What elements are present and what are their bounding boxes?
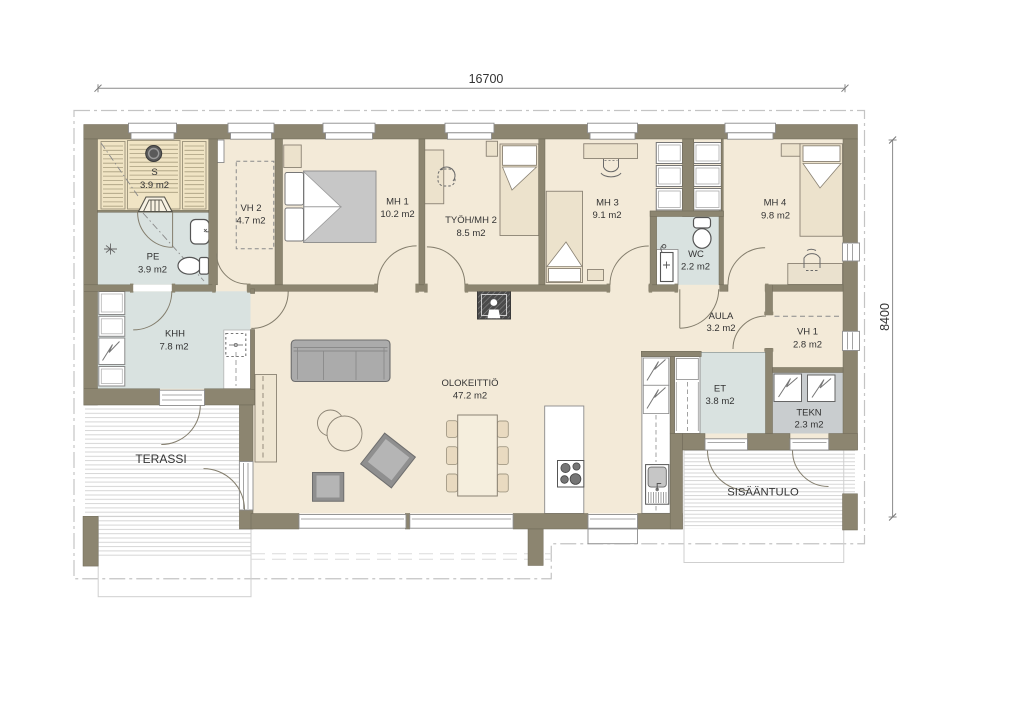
svg-text:PE: PE	[147, 252, 160, 263]
svg-text:TERASSI: TERASSI	[135, 452, 186, 466]
svg-text:10.2 m2: 10.2 m2	[380, 209, 414, 220]
svg-text:MH 1: MH 1	[386, 197, 409, 208]
svg-text:8.5 m2: 8.5 m2	[456, 228, 485, 239]
svg-text:2.3 m2: 2.3 m2	[794, 420, 823, 431]
svg-text:SISÄÄNTULO: SISÄÄNTULO	[727, 487, 799, 499]
svg-text:3.2 m2: 3.2 m2	[706, 323, 735, 334]
svg-text:47.2 m2: 47.2 m2	[453, 391, 487, 402]
svg-text:VH 2: VH 2	[240, 203, 261, 214]
svg-text:VH 1: VH 1	[797, 327, 818, 338]
svg-text:MH 4: MH 4	[764, 198, 787, 209]
svg-text:ET: ET	[714, 384, 726, 395]
svg-text:3.9 m2: 3.9 m2	[140, 180, 169, 191]
svg-text:3.8 m2: 3.8 m2	[705, 396, 734, 407]
svg-text:OLOKEITTIÖ: OLOKEITTIÖ	[441, 378, 498, 389]
svg-text:S: S	[151, 167, 157, 178]
svg-text:4.7 m2: 4.7 m2	[236, 216, 265, 227]
svg-text:TEKN: TEKN	[796, 408, 821, 419]
svg-text:MH 3: MH 3	[596, 198, 619, 209]
svg-text:16700: 16700	[469, 72, 504, 86]
svg-text:9.8 m2: 9.8 m2	[761, 211, 790, 222]
svg-text:2.2 m2: 2.2 m2	[681, 262, 710, 273]
svg-text:KHH: KHH	[165, 329, 185, 340]
svg-text:WC: WC	[688, 249, 704, 260]
svg-text:9.1 m2: 9.1 m2	[592, 210, 621, 221]
svg-text:TYÖH/MH 2: TYÖH/MH 2	[445, 215, 497, 226]
svg-text:2.8 m2: 2.8 m2	[793, 340, 822, 351]
svg-text:7.8 m2: 7.8 m2	[159, 342, 188, 353]
svg-text:3.9 m2: 3.9 m2	[138, 265, 167, 276]
svg-text:AULA: AULA	[709, 311, 734, 322]
svg-text:8400: 8400	[878, 303, 892, 331]
